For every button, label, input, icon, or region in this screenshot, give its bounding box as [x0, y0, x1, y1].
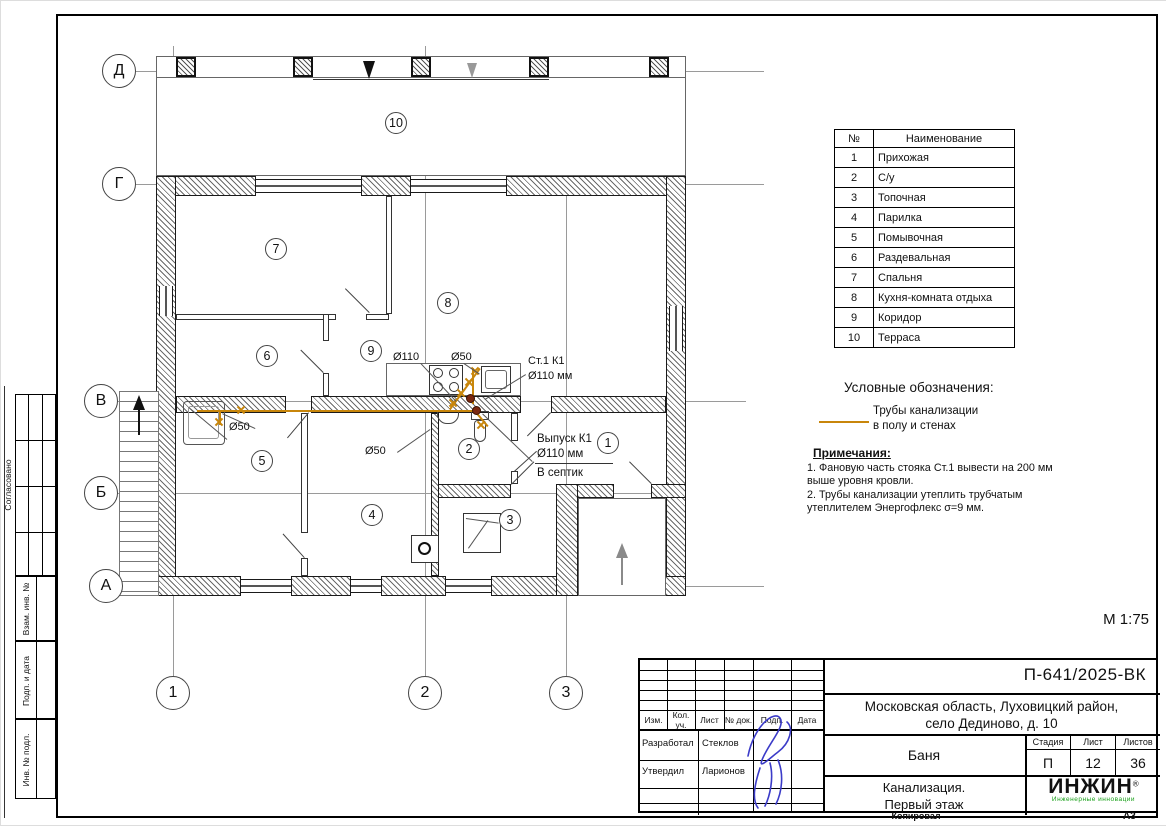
- table-row: 1Прихожая: [835, 148, 1015, 168]
- note-item-2: 2. Трубы канализации утеплить трубчатым …: [807, 489, 1059, 515]
- tb-col-koluch: Кол. уч.: [667, 712, 695, 728]
- wall-top: [361, 176, 411, 196]
- sauna-stove-icon: [411, 535, 439, 563]
- scale-label: М 1:75: [1059, 611, 1149, 628]
- axis-circle-a: А: [89, 569, 123, 603]
- wall-bottom: [381, 576, 446, 596]
- window: [411, 179, 506, 193]
- format-label: А3: [1123, 811, 1151, 822]
- room-marker-5: 5: [251, 450, 273, 472]
- room-marker-2: 2: [458, 438, 480, 460]
- table-row: 9Коридор: [835, 308, 1015, 328]
- kitchen-sink-icon: [481, 366, 511, 393]
- pipe-fitting-mark: [464, 377, 474, 387]
- pipe-fitting-mark: [214, 417, 224, 427]
- partition: [301, 413, 308, 533]
- porch-arrow-stem: [621, 557, 623, 585]
- stack-point: [466, 394, 475, 403]
- notes-title: Примечания:: [813, 446, 891, 460]
- window: [159, 286, 173, 316]
- partition: [323, 314, 329, 341]
- table-row: 8Кухня-комната отдыха: [835, 288, 1015, 308]
- table-row: 6Раздевальная: [835, 248, 1015, 268]
- pipe-fitting-mark: [476, 420, 486, 430]
- room-marker-7: 7: [265, 238, 287, 260]
- wall-axis-b: [651, 484, 686, 498]
- pipe-fitting-mark: [456, 388, 466, 398]
- label-st1-riser: Ст.1 К1: [528, 355, 565, 367]
- terrace-post: [529, 57, 549, 77]
- terrace-edge-line: [156, 77, 686, 78]
- table-row: 7Спальня: [835, 268, 1015, 288]
- tb-object-name: Баня: [823, 736, 1025, 774]
- label-outlet: Выпуск К1: [537, 433, 592, 445]
- axis-circle-d: Д: [102, 54, 136, 88]
- tb-drawing-name: Канализация. Первый этаж: [823, 777, 1025, 815]
- room-marker-9: 9: [360, 340, 382, 362]
- tb-address: Московская область, Луховицкий район, се…: [826, 695, 1157, 734]
- terrace-post: [293, 57, 313, 77]
- copied-label: Копировал: [876, 811, 956, 821]
- table-row: 5Помывочная: [835, 228, 1015, 248]
- table-row: 10Терраса: [835, 328, 1015, 348]
- title-block: Изм. Кол. уч. Лист № док. Подп. Дата Раз…: [638, 658, 1158, 813]
- partition: [366, 314, 389, 320]
- tb-col-izm: Изм.: [640, 712, 667, 728]
- tb-sheets-value: 36: [1116, 750, 1160, 775]
- axis-circle-1: 1: [156, 676, 190, 710]
- wall-right: [666, 176, 686, 596]
- side-box-inv-label: Инв. № подл.: [21, 722, 31, 798]
- axis-line-3: [566, 171, 567, 676]
- logo-reg-mark: ®: [1133, 780, 1139, 789]
- tb-approved-label: Утвердил: [642, 766, 684, 777]
- terrace-post: [649, 57, 669, 77]
- roof-mark-line: [313, 79, 549, 80]
- tb-developed-name: Стеклов: [702, 738, 739, 749]
- rooms-table: №Наименование 1Прихожая 2С/у 3Топочная 4…: [834, 129, 1015, 348]
- axis-circle-3: 3: [549, 676, 583, 710]
- tb-developed-label: Разработал: [642, 738, 694, 749]
- company-logo: ИНЖИН® Инженерные инновации: [1027, 777, 1160, 815]
- window: [241, 579, 291, 593]
- signature-scribble: [740, 708, 805, 813]
- roof-arrow-black: [363, 61, 375, 79]
- axis-circle-g: Г: [102, 167, 136, 201]
- wall-axis-b: [431, 484, 511, 498]
- tb-sheets-label: Листов: [1116, 735, 1160, 749]
- outlet-point: [472, 406, 481, 415]
- logo-subtitle: Инженерные инновации: [1027, 796, 1160, 803]
- axis-circle-b: Б: [84, 476, 118, 510]
- rooms-table-header-num: №: [835, 130, 874, 148]
- wall-bottom: [291, 576, 351, 596]
- wall-top: [506, 176, 686, 196]
- approved-vertical-label: Согласовано: [3, 415, 15, 555]
- label-outlet-diameter: Ø110 мм: [537, 448, 583, 460]
- boiler-icon: [463, 513, 501, 553]
- partition: [176, 314, 336, 320]
- terrace-post: [176, 57, 196, 77]
- room-marker-4: 4: [361, 504, 383, 526]
- roof-arrow-grey: [467, 63, 477, 78]
- terrace-post: [411, 57, 431, 77]
- tb-sheet-value: 12: [1071, 750, 1115, 775]
- partition: [386, 196, 392, 314]
- side-box-podp-label: Подп. и дата: [21, 644, 31, 718]
- wall-left: [156, 176, 176, 596]
- room-marker-3: 3: [499, 509, 521, 531]
- axis-circle-2: 2: [408, 676, 442, 710]
- room-marker-10: 10: [385, 112, 407, 134]
- room-marker-8: 8: [437, 292, 459, 314]
- legend-title: Условные обозначения:: [844, 380, 994, 395]
- label-d50-parilka: Ø50: [365, 445, 386, 457]
- label-d50-shower: Ø50: [229, 421, 250, 433]
- partition: [511, 413, 518, 441]
- window: [351, 579, 381, 593]
- porch-arrow: [616, 543, 628, 558]
- table-row: 3Топочная: [835, 188, 1015, 208]
- tb-doc-number: П-641/2025-ВК: [823, 665, 1146, 685]
- label-st1-diameter: Ø110 мм: [528, 370, 572, 382]
- partition: [323, 373, 329, 396]
- table-row: 4Парилка: [835, 208, 1015, 228]
- side-box-podp: Подп. и дата: [15, 641, 56, 719]
- approval-table: [15, 394, 56, 576]
- room-marker-6: 6: [256, 345, 278, 367]
- legend-pipe-label: Трубы канализации в полу и стенах: [873, 404, 978, 434]
- legend-pipe-sample: [819, 421, 869, 423]
- partition: [301, 558, 308, 576]
- tb-col-list: Лист: [695, 712, 724, 728]
- side-box-inv: Инв. № подл.: [15, 719, 56, 799]
- wall-axis-v: [551, 396, 666, 413]
- room-marker-1: 1: [597, 432, 619, 454]
- label-d50-kitchen: Ø50: [451, 351, 472, 363]
- label-d110: Ø110: [393, 351, 419, 363]
- tb-approved-name: Ларионов: [702, 766, 745, 777]
- outlet-underline: [535, 463, 613, 464]
- window: [256, 179, 361, 193]
- logo-text: ИНЖИН: [1048, 775, 1133, 798]
- window: [446, 579, 491, 593]
- tb-stage-value: П: [1026, 750, 1070, 775]
- window: [669, 306, 683, 351]
- stairs-arrow-stem: [138, 409, 140, 435]
- drawing-sheet: Согласовано Взам. инв. № Подп. и дата Ин…: [0, 0, 1166, 826]
- axis-circle-v: В: [84, 384, 118, 418]
- tb-sheet-label: Лист: [1071, 735, 1115, 749]
- wall-porch-left: [556, 484, 578, 596]
- wall-bottom: [156, 576, 241, 596]
- stairs-arrow: [133, 395, 145, 410]
- rooms-table-header-name: Наименование: [874, 130, 1015, 148]
- pipe-fitting-mark: [236, 405, 246, 415]
- side-box-vzam: Взам. инв. №: [15, 576, 56, 641]
- side-box-vzam-label: Взам. инв. №: [21, 578, 31, 640]
- tb-stage-label: Стадия: [1026, 735, 1070, 749]
- note-item-1: 1. Фановую часть стояка Ст.1 вывести на …: [807, 462, 1059, 488]
- table-row: 2С/у: [835, 168, 1015, 188]
- label-outlet-target: В септик: [537, 467, 583, 479]
